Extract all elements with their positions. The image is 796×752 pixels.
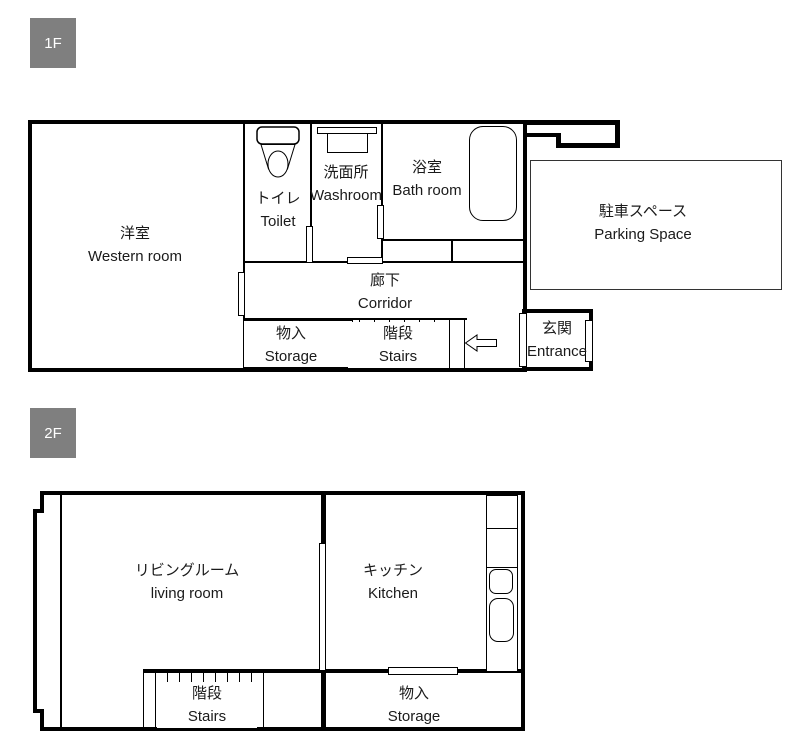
label-jp: リビングルーム	[87, 559, 287, 582]
label-en: Storage	[231, 345, 351, 368]
label-en: Stairs	[157, 705, 257, 728]
wall-segment	[40, 491, 525, 495]
room-label-stairs-2f: 階段 Stairs	[157, 682, 257, 728]
label-jp: 玄関	[517, 317, 597, 340]
floor-tag-2f-label: 2F	[44, 425, 62, 442]
label-jp: 物入	[354, 682, 474, 705]
wall-segment	[321, 669, 326, 727]
kitchen-sink-small-icon	[489, 569, 513, 594]
label-jp: 階段	[157, 682, 257, 705]
room-label-corridor: 廊下 Corridor	[305, 269, 465, 315]
wall-segment	[33, 509, 37, 713]
wall-segment	[486, 528, 518, 529]
door-marker-storage-2f	[388, 667, 458, 675]
wall-segment	[33, 709, 44, 713]
label-en: Parking Space	[543, 223, 743, 246]
door-marker-washroom	[347, 257, 383, 264]
wall-segment	[451, 239, 453, 263]
label-en: Entrance	[517, 340, 597, 363]
label-en: Storage	[354, 705, 474, 728]
wall-segment	[321, 495, 326, 545]
washbasin-icon	[317, 127, 377, 154]
room-label-western: 洋室 Western room	[35, 222, 235, 268]
room-label-entrance: 玄関 Entrance	[517, 317, 597, 363]
door-marker-corridor-western	[238, 272, 245, 316]
label-jp: 階段	[348, 322, 448, 345]
wall-segment	[243, 261, 523, 263]
label-en: Stairs	[348, 345, 448, 368]
floorplan: 1F 2F	[0, 0, 796, 752]
room-label-bath: 浴室 Bath room	[367, 156, 487, 202]
floor-tag-2f: 2F	[30, 408, 76, 458]
label-jp: 洋室	[35, 222, 235, 245]
wall-segment	[527, 120, 620, 125]
wall-segment	[556, 143, 620, 148]
label-en: Bath room	[367, 179, 487, 202]
label-jp: キッチン	[313, 559, 473, 582]
wall-segment	[60, 495, 62, 727]
room-label-living: リビングルーム living room	[87, 559, 287, 605]
label-jp: 廊下	[305, 269, 465, 292]
wall-segment	[527, 133, 561, 137]
floor-tag-1f: 1F	[30, 18, 76, 68]
label-jp: 駐車スペース	[543, 200, 743, 223]
door-marker-bath	[377, 205, 384, 239]
floor-tag-1f-label: 1F	[44, 35, 62, 52]
room-label-parking: 駐車スペース Parking Space	[543, 200, 743, 246]
room-label-kitchen: キッチン Kitchen	[313, 559, 473, 605]
wall-segment	[521, 491, 525, 731]
label-en: Kitchen	[313, 582, 473, 605]
wall-segment	[33, 509, 44, 513]
label-jp: 物入	[231, 322, 351, 345]
room-label-stairs-1f: 階段 Stairs	[348, 322, 448, 368]
label-en: Western room	[35, 245, 235, 268]
label-en: living room	[87, 582, 287, 605]
entry-direction-arrow-icon	[465, 334, 497, 352]
room-label-storage-1f: 物入 Storage	[231, 322, 351, 368]
label-en: Toilet	[228, 210, 328, 233]
room-label-storage-2f: 物入 Storage	[354, 682, 474, 728]
kitchen-sink-large-icon	[489, 598, 514, 642]
wall-segment	[486, 567, 518, 568]
label-en: Corridor	[305, 292, 465, 315]
label-jp: 浴室	[367, 156, 487, 179]
